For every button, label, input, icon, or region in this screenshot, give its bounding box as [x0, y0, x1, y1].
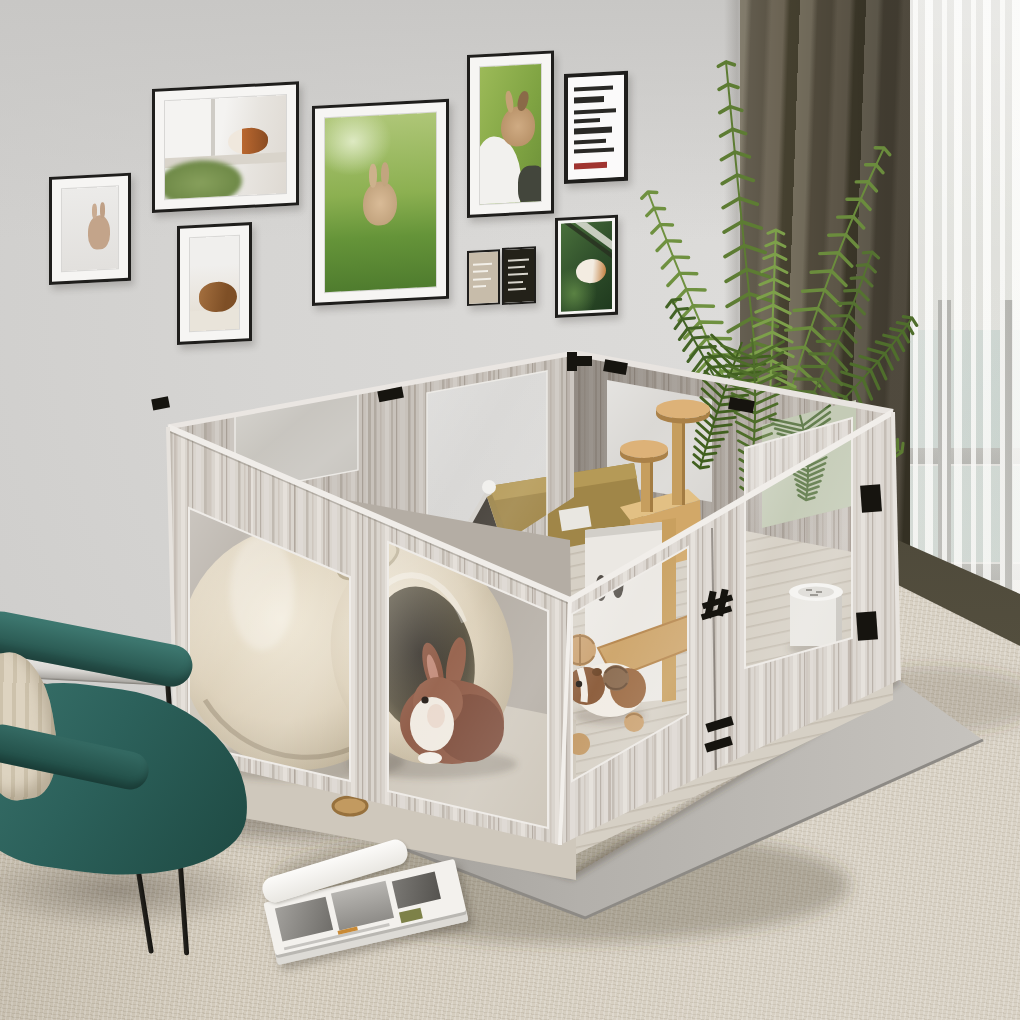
- magazine-stack: [268, 862, 468, 957]
- bw-photo: [275, 897, 333, 942]
- corner-clip: [151, 396, 170, 410]
- wood-bowl: [333, 797, 367, 815]
- corner-clip: [567, 352, 577, 371]
- side-clip: [856, 611, 878, 640]
- lounge-chair: [0, 600, 300, 1000]
- bw-photo: [392, 872, 441, 909]
- side-clip: [860, 484, 882, 512]
- living-room-scene: [0, 0, 1020, 1020]
- color-thumb: [399, 908, 423, 924]
- corner-clip: [577, 356, 592, 366]
